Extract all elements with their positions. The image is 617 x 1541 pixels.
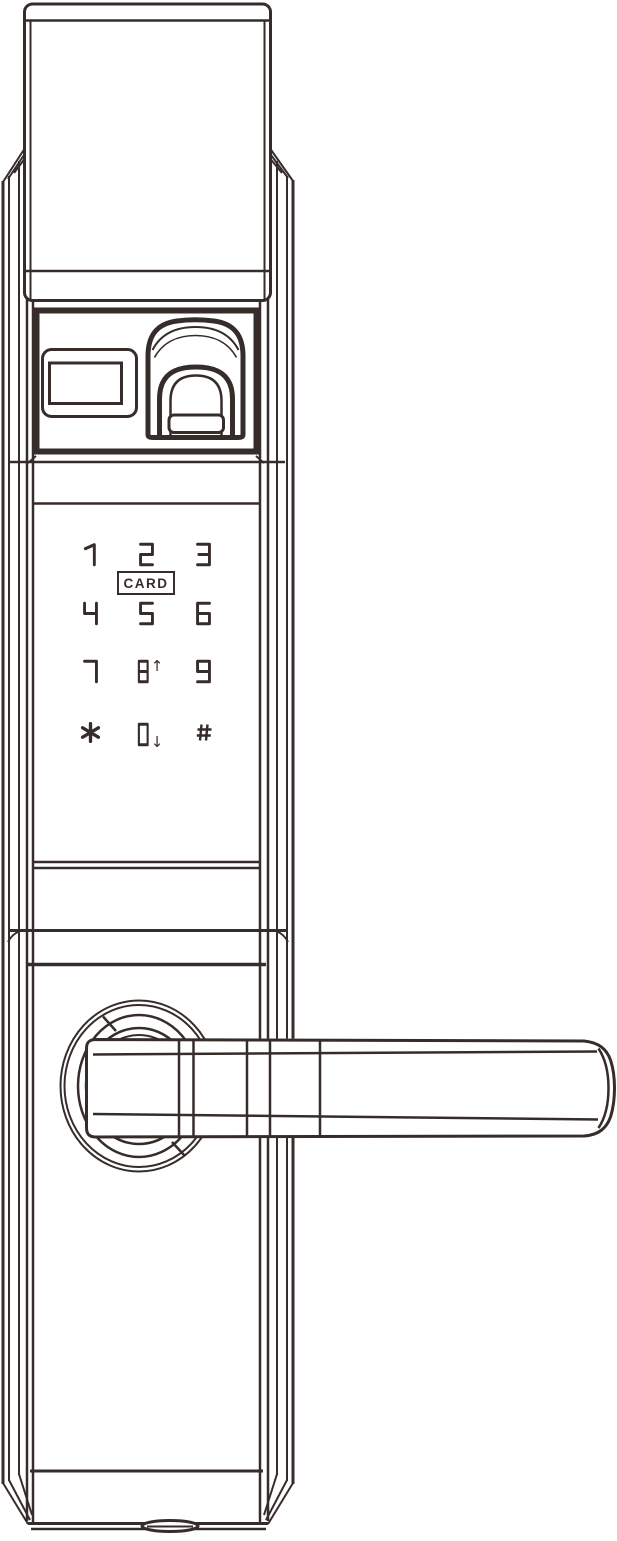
bevel-band <box>10 456 285 504</box>
keypad-panel <box>33 862 260 868</box>
fingerprint-scanner <box>148 320 243 438</box>
fingerprint-panel <box>37 311 257 452</box>
card-key-label: CARD <box>124 576 169 591</box>
mid-bands <box>8 931 288 965</box>
door-lock-diagram: ↑↓ CARD <box>0 0 617 1541</box>
handle-lever <box>87 1040 615 1138</box>
display-screen <box>43 350 137 417</box>
lock-line-art <box>0 0 617 1541</box>
top-cap <box>25 4 271 301</box>
card-key: CARD <box>117 571 175 595</box>
usb-port <box>142 1521 198 1532</box>
